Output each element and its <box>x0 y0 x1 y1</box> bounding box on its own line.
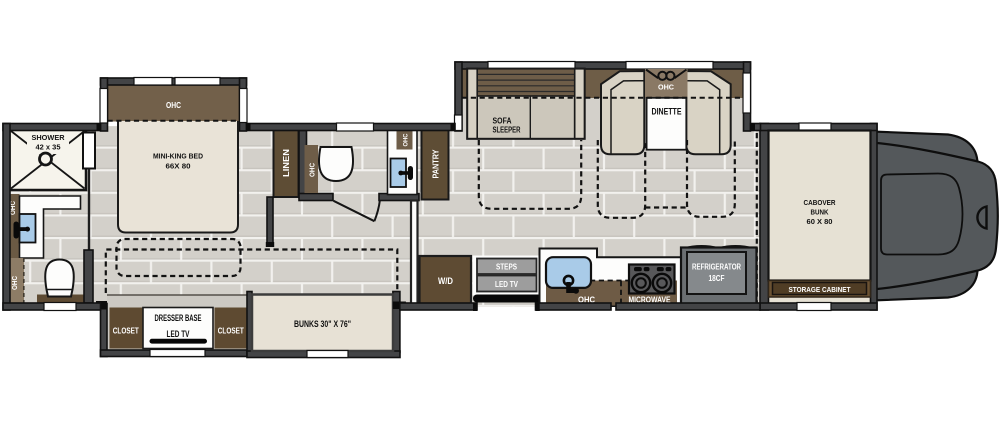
svg-text:SHOWER: SHOWER <box>32 133 66 142</box>
svg-text:CLOSET: CLOSET <box>218 326 245 336</box>
svg-text:SOFA: SOFA <box>493 117 512 126</box>
svg-text:LED TV: LED TV <box>495 279 518 289</box>
svg-text:DRESSER BASE: DRESSER BASE <box>155 313 202 323</box>
svg-text:DINETTE: DINETTE <box>652 107 682 118</box>
svg-text:OHC: OHC <box>403 133 410 146</box>
svg-text:18CF: 18CF <box>709 274 725 283</box>
svg-text:BUNKS 30" X 76": BUNKS 30" X 76" <box>294 319 351 330</box>
svg-text:LINEN: LINEN <box>281 149 291 177</box>
svg-text:STORAGE CABINET: STORAGE CABINET <box>789 285 851 294</box>
svg-text:SLEEPER: SLEEPER <box>493 126 521 135</box>
svg-text:MINI-KING BED: MINI-KING BED <box>153 152 204 161</box>
svg-text:OHC: OHC <box>166 101 181 110</box>
svg-text:W/D: W/D <box>438 276 453 286</box>
svg-text:42 x 35: 42 x 35 <box>36 143 61 152</box>
svg-text:OHC: OHC <box>12 276 19 290</box>
svg-text:OHC: OHC <box>658 83 675 92</box>
svg-text:OHC: OHC <box>310 163 317 177</box>
svg-text:OHC: OHC <box>10 201 17 215</box>
svg-text:60 X 80: 60 X 80 <box>807 217 833 226</box>
svg-text:66X 80: 66X 80 <box>166 162 191 171</box>
svg-text:CABOVER: CABOVER <box>804 198 836 207</box>
svg-text:REFRIGERATOR: REFRIGERATOR <box>692 263 741 272</box>
svg-text:LED TV: LED TV <box>167 329 190 339</box>
svg-text:PANTRY: PANTRY <box>431 149 441 178</box>
svg-text:STEPS: STEPS <box>496 262 517 272</box>
svg-text:CLOSET: CLOSET <box>113 326 140 336</box>
svg-text:BUNK: BUNK <box>811 208 829 217</box>
